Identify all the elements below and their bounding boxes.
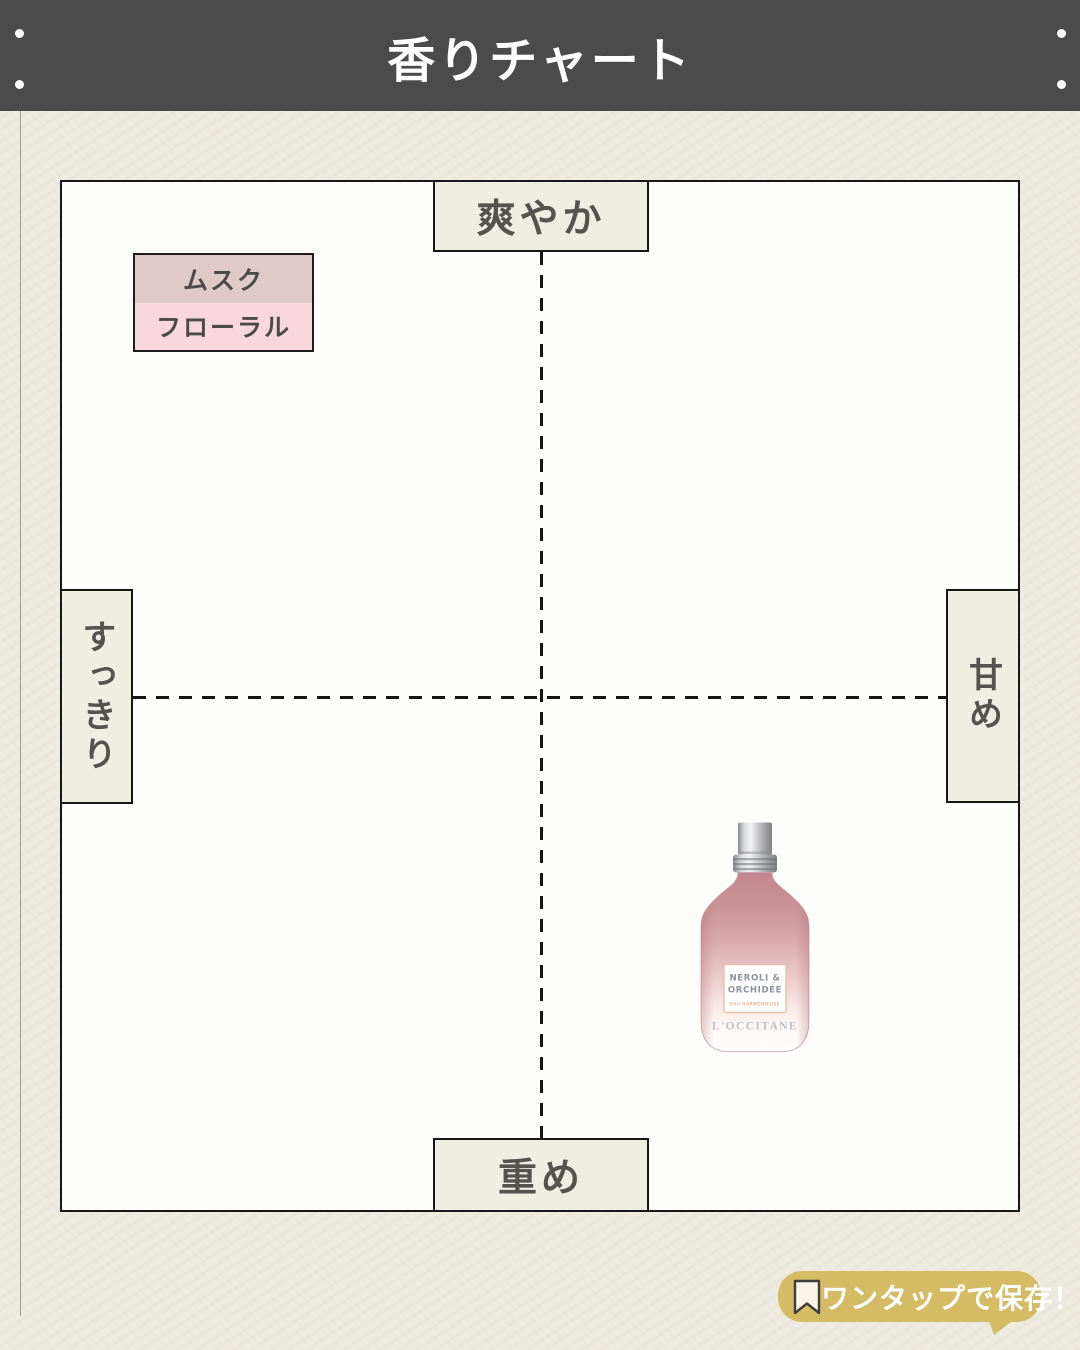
header-bar: 香りチャート	[0, 0, 1080, 111]
axis-label-bottom: 重め	[433, 1138, 649, 1212]
scent-family-legend: ムスク フローラル	[133, 253, 314, 352]
save-badge-tail	[988, 1318, 1016, 1335]
bottle-label-name-line2: ORCHIDÉE	[728, 983, 782, 995]
perfume-bottle-image: NÉROLI & ORCHIDÉE EAU HARMONIEUSE L'OCCI…	[699, 821, 811, 1054]
axis-label-top-text: 爽やか	[476, 188, 605, 244]
bottle-cap	[733, 822, 777, 872]
axis-label-top: 爽やか	[433, 180, 649, 252]
save-badge-label: ワンタップで保存！	[821, 1277, 1080, 1317]
bottle-label-subtitle: EAU HARMONIEUSE	[730, 1001, 780, 1007]
axis-label-left: すっきり	[60, 589, 133, 804]
axis-label-right: 甘め	[946, 589, 1020, 803]
axis-label-left-text: すっきり	[72, 619, 121, 775]
save-badge[interactable]: ワンタップで保存！	[778, 1271, 1041, 1322]
corner-dot	[1057, 29, 1066, 38]
bottle-brand-embossed: L'OCCITANE	[712, 1020, 798, 1032]
bottle-label: NÉROLI & ORCHIDÉE EAU HARMONIEUSE	[724, 964, 786, 1012]
fragrance-chart: 爽やか 重め すっきり 甘め ムスク フローラル	[60, 180, 1020, 1212]
legend-item-musk: ムスク	[135, 255, 312, 303]
legend-item-floral: フローラル	[135, 303, 312, 351]
bottle-label-name-line1: NÉROLI &	[730, 971, 781, 983]
bookmark-icon	[793, 1279, 821, 1315]
legend-item-floral-label: フローラル	[156, 308, 291, 344]
legend-item-musk-label: ムスク	[183, 261, 264, 297]
horizontal-axis-dashed-line	[133, 696, 950, 699]
page-title: 香りチャート	[387, 21, 693, 91]
axis-label-bottom-text: 重め	[498, 1147, 584, 1203]
axis-label-right-text: 甘め	[959, 657, 1008, 735]
corner-dot	[15, 29, 24, 38]
corner-dot	[15, 80, 24, 89]
page-fold-line	[20, 111, 21, 1316]
product-marker-perfume-bottle: NÉROLI & ORCHIDÉE EAU HARMONIEUSE L'OCCI…	[699, 821, 811, 1054]
corner-dot	[1057, 80, 1066, 89]
